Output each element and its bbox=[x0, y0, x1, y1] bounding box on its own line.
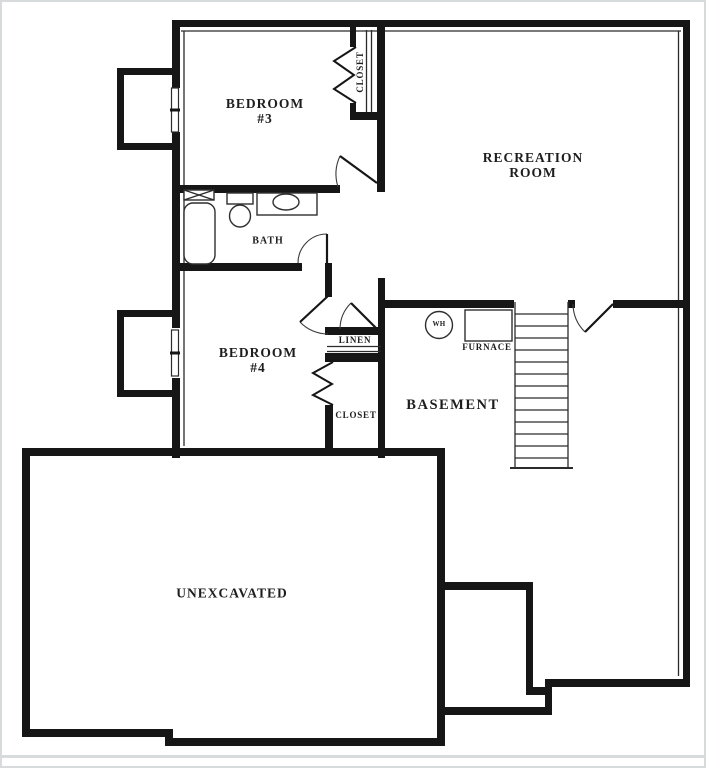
wall-left-seg7 bbox=[172, 390, 180, 458]
basement-label: BASEMENT bbox=[406, 398, 499, 414]
bath-door-arc bbox=[298, 234, 327, 263]
basement-bottom-wall bbox=[545, 679, 690, 687]
basement-north-wall-right bbox=[613, 300, 683, 308]
closet-bedroom3-label: CLOSET bbox=[356, 51, 366, 92]
bedroom3-door-arc bbox=[336, 156, 340, 187]
linen-parts bbox=[327, 347, 381, 352]
unexcavated-label: UNEXCAVATED bbox=[176, 587, 288, 602]
wall-top bbox=[172, 20, 690, 27]
bathtub bbox=[184, 203, 215, 264]
bedroom4-door-leaf bbox=[300, 296, 328, 322]
photo-frame-bottom-band bbox=[0, 755, 706, 758]
wall-right bbox=[683, 20, 690, 687]
recroom-west-upper bbox=[377, 20, 385, 192]
basement-north-wall-left bbox=[383, 300, 514, 308]
unexcavated-right-wall bbox=[437, 448, 445, 745]
bedroom3-label-line2: #3 bbox=[226, 112, 304, 127]
unexcavated-bottom-left bbox=[22, 729, 172, 737]
toilet-bowl bbox=[230, 205, 251, 227]
unexcavated-walls bbox=[22, 448, 690, 746]
basement-door-arc bbox=[573, 304, 585, 332]
bumpout2-top bbox=[117, 310, 179, 317]
recreation-label-line2: ROOM bbox=[483, 166, 584, 181]
wall-left-seg4 bbox=[172, 143, 180, 310]
floor-plan-drawing bbox=[0, 0, 706, 768]
recreation-label-line1: RECREATION bbox=[483, 151, 584, 166]
unexcavated-left-wall bbox=[22, 448, 30, 737]
closet3-left-upper bbox=[350, 27, 356, 47]
closet-bedroom4-label: CLOSET bbox=[335, 411, 376, 421]
linen-bottom-wall bbox=[325, 353, 385, 362]
floor-plan-canvas: BEDROOM #3 CLOSET RECREATION ROOM BATH B… bbox=[0, 0, 706, 768]
bedroom4-door-arc bbox=[300, 322, 328, 334]
notch-right-wall bbox=[526, 582, 533, 694]
furnace-label: FURNACE bbox=[462, 343, 512, 353]
wall-left-seg3 bbox=[172, 132, 180, 143]
closet4-left-wall bbox=[325, 405, 333, 450]
bumpout2-left bbox=[117, 310, 124, 397]
bath-fixtures bbox=[184, 190, 317, 264]
linen-label: LINEN bbox=[339, 336, 372, 346]
bumpout1-left bbox=[117, 68, 124, 150]
closet4-bifold-door bbox=[313, 362, 333, 405]
wall-left-seg1 bbox=[172, 20, 180, 68]
notch-bottom-wall bbox=[437, 707, 552, 715]
bumpout1-bottom bbox=[117, 143, 179, 150]
wall-left-seg6 bbox=[172, 378, 180, 390]
hall-divider-wall bbox=[325, 263, 332, 297]
closet3-bifold-door bbox=[334, 47, 356, 103]
bedroom4-label: BEDROOM #4 bbox=[219, 346, 297, 376]
furnace-box bbox=[465, 310, 512, 341]
basement-door-leaf bbox=[585, 304, 613, 332]
unexcavated-top-wall bbox=[22, 448, 443, 456]
bedroom4-label-line1: BEDROOM bbox=[219, 346, 297, 361]
bedroom3-door-leaf bbox=[340, 156, 377, 183]
bedroom3-label-line1: BEDROOM bbox=[226, 97, 304, 112]
notch-top-wall bbox=[437, 582, 533, 590]
vanity-sink bbox=[273, 194, 299, 210]
linen-door-arc bbox=[340, 303, 351, 329]
water-heater-label: WH bbox=[432, 321, 445, 329]
basement-north-wall-stub bbox=[568, 300, 575, 308]
unexcavated-bottom-right bbox=[165, 738, 445, 746]
bumpout2-bottom bbox=[117, 390, 179, 397]
bedroom4-label-line2: #4 bbox=[219, 361, 297, 376]
recreation-room-label: RECREATION ROOM bbox=[483, 151, 584, 181]
stairs bbox=[510, 302, 573, 468]
toilet-tank bbox=[227, 193, 253, 204]
linen-door-leaf bbox=[351, 303, 377, 329]
bedroom3-label: BEDROOM #3 bbox=[226, 97, 304, 127]
bumpout1-top bbox=[117, 68, 179, 75]
bath-label: BATH bbox=[252, 236, 284, 247]
